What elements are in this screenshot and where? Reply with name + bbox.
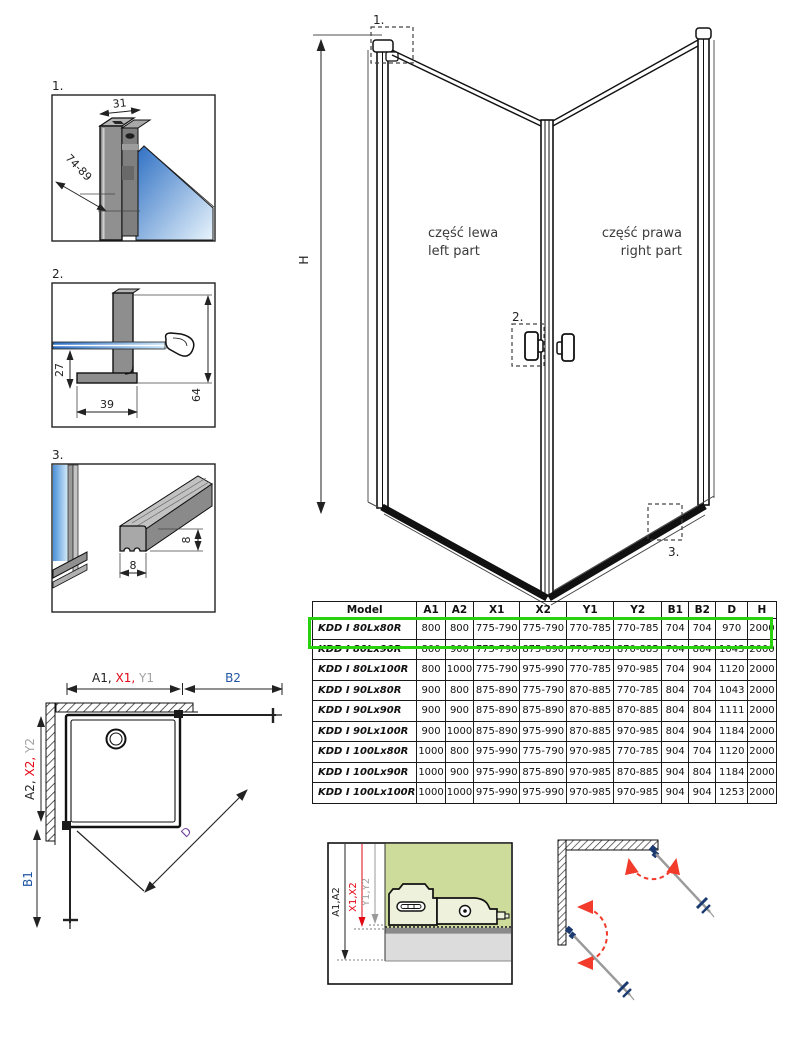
tray-edge-block [385,934,511,961]
height-dim-label: H [296,255,311,264]
detail-1-callout: 1. 31 74-89 [52,79,215,241]
table-cell: 2000 [748,762,776,783]
table-cell: 1184 [716,721,748,742]
table-row: KDD I 80Lx90R800900775-790875-890770-785… [313,639,777,660]
table-cell: 900 [445,762,473,783]
table-cell: 704 [689,680,716,701]
column-header: X1 [474,602,520,619]
table-cell: 875-890 [474,680,520,701]
table-cell: 975-990 [520,721,567,742]
table-cell: 704 [662,639,689,660]
table-cell: 800 [417,639,445,660]
table-cell: 704 [662,619,689,640]
table-cell: 2000 [748,742,776,763]
profile-band [385,928,511,934]
table-cell: 804 [689,762,716,783]
column-header: B2 [689,602,716,619]
table-cell: 770-785 [614,619,662,640]
model-cell: KDD I 100Lx80R [313,742,417,763]
dim-label-a1x1y1: A1, X1, Y1 [92,671,154,685]
table-cell: 1000 [417,783,445,804]
dim-label: 8 [130,559,137,572]
column-header: A1 [417,602,445,619]
table-cell: 875-890 [520,639,567,660]
table-cell: 770-785 [567,660,614,681]
table-cell: 970-985 [614,721,662,742]
door-glass-line [574,936,630,995]
left-part-label-pl: część lewa [428,226,498,241]
table-cell: 870-885 [567,680,614,701]
table-cell: 770-785 [567,619,614,640]
table-cell: 800 [445,680,473,701]
table-cell: 775-790 [520,619,567,640]
table-cell: 1000 [417,742,445,763]
model-cell: KDD I 90Lx100R [313,721,417,742]
table-cell: 2000 [748,619,776,640]
table-cell: 1111 [716,701,748,722]
model-cell: KDD I 90Lx80R [313,680,417,701]
table-cell: 1253 [716,783,748,804]
table-cell: 904 [662,783,689,804]
table-cell: 875-890 [474,721,520,742]
table-cell: 900 [417,721,445,742]
table-cell: 900 [445,701,473,722]
table-cell: 900 [445,639,473,660]
plan-left-dimensions: A2, X2, Y2 B1 [21,717,41,927]
table-cell: 804 [689,639,716,660]
upper-door [629,845,714,917]
detail-2-callout: 2. 27 39 [52,267,215,427]
shower-tray [66,715,180,827]
dim-label: 8 [180,537,193,544]
table-cell: 870-885 [614,639,662,660]
table-cell: 2000 [748,639,776,660]
table-cell: 1043 [716,680,748,701]
left-door-handle [525,332,538,360]
table-cell: 775-790 [520,742,567,763]
table-cell: 1184 [716,762,748,783]
table-cell: 1000 [445,783,473,804]
table-cell: 1000 [417,762,445,783]
table-cell: 870-885 [614,701,662,722]
dim-label: 31 [112,96,127,110]
table-cell: 875-890 [520,762,567,783]
table-cell: 970-985 [567,742,614,763]
dim-label: 64 [190,388,203,402]
dim-label-y: Y1,Y2 [361,878,372,907]
table-cell: 975-990 [520,783,567,804]
table-cell: 904 [662,762,689,783]
center-post [541,120,553,596]
table-cell: 904 [689,721,716,742]
column-header: Y1 [567,602,614,619]
dim-label-x: X1,X2 [348,882,359,912]
dim-label: 27 [53,363,66,377]
table-cell: 1120 [716,742,748,763]
plan-top-dimensions: A1, X1, Y1 B2 [67,671,282,695]
right-door-handle [562,334,574,361]
column-header: H [748,602,776,619]
table-cell: 904 [689,660,716,681]
main-drawing: H [300,10,790,610]
table-cell: 804 [662,721,689,742]
table-cell: 775-790 [474,660,520,681]
model-cell: KDD I 100Lx100R [313,783,417,804]
door-swing-line [77,831,144,891]
right-panel [696,28,714,505]
column-header: Y2 [614,602,662,619]
part-labels: część lewa left part część prawa right p… [428,226,682,259]
table-cell: 870-885 [567,701,614,722]
column-header: A2 [445,602,473,619]
dim-label: 39 [100,398,114,411]
table-cell: 1000 [445,721,473,742]
detail-1-label: 1. [52,79,63,93]
table-row: KDD I 100Lx90R1000900975-990875-890970-9… [313,762,777,783]
table-cell: 775-790 [474,619,520,640]
table-cell: 970-985 [567,762,614,783]
table-cell: 1000 [445,660,473,681]
table-cell: 875-890 [474,701,520,722]
model-cell: KDD I 80Lx80R [313,619,417,640]
table-cell: 1120 [716,660,748,681]
table-cell: 770-785 [614,680,662,701]
section-view: A1,A2 X1,X2 Y1,Y2 [327,842,513,985]
table-cell: 975-990 [474,762,520,783]
right-part-label-en: right part [621,244,682,259]
lower-door [565,907,634,1000]
product-spec-sheet: 1. 31 74-89 [0,0,791,1045]
dim-label-b2: B2 [225,671,241,685]
table-cell: 804 [662,680,689,701]
top-cap [696,28,711,39]
table-cell: 775-790 [474,639,520,660]
table-cell: 800 [417,660,445,681]
table-cell: 970 [716,619,748,640]
table-cell: 975-990 [474,783,520,804]
corner-walls [558,840,658,945]
model-cell: KDD I 80Lx90R [313,639,417,660]
table-row: KDD I 90Lx100R9001000875-890975-990870-8… [313,721,777,742]
table-cell: 704 [689,742,716,763]
dim-label-a2x2y2: A2, X2, Y2 [23,738,37,800]
detail-3-label: 3. [52,448,63,462]
column-header: Model [313,602,417,619]
table-cell: 804 [662,701,689,722]
table-cell: 970-985 [614,660,662,681]
table-cell: 800 [445,742,473,763]
table-cell: 870-885 [567,721,614,742]
left-part-label-en: left part [428,244,480,259]
table-cell: 900 [417,680,445,701]
table-cell: 975-990 [474,742,520,763]
marker-3: 3. [668,545,679,559]
table-cell: 870-885 [614,762,662,783]
detail-callouts: 1. 31 74-89 [40,70,220,615]
table-cell: 800 [417,619,445,640]
column-header: B1 [662,602,689,619]
left-panel [368,40,398,508]
table-cell: 704 [689,619,716,640]
table-cell: 775-790 [520,680,567,701]
detail-markers: 1. 2. 3. [371,13,682,559]
table-cell: 804 [689,701,716,722]
table-cell: 970-985 [567,783,614,804]
model-cell: KDD I 100Lx90R [313,762,417,783]
top-cap [373,40,393,52]
table-row: KDD I 90Lx90R900900875-890875-890870-885… [313,701,777,722]
marker-2: 2. [512,310,523,324]
plan-view: A1, X1, Y1 B2 [28,665,300,970]
table-row: KDD I 80Lx80R800800775-790775-790770-785… [313,619,777,640]
table-row: KDD I 80Lx100R8001000775-790975-990770-7… [313,660,777,681]
table-cell: 800 [445,619,473,640]
table-cell: 2000 [748,660,776,681]
marker-1: 1. [373,13,384,27]
table-cell: 875-890 [520,701,567,722]
table-cell: 704 [662,660,689,681]
hinge [62,821,71,830]
table-row: KDD I 90Lx80R900800875-890775-790870-885… [313,680,777,701]
table-cell: 975-990 [520,660,567,681]
table-cell: 1043 [716,639,748,660]
dim-label-a: A1,A2 [331,887,342,917]
column-header: X2 [520,602,567,619]
table-cell: 904 [689,783,716,804]
table-cell: 2000 [748,680,776,701]
model-cell: KDD I 80Lx100R [313,660,417,681]
table-cell: 770-785 [567,639,614,660]
glass-panel [53,465,68,561]
hinge [174,710,183,718]
table-row: KDD I 100Lx100R10001000975-990975-990970… [313,783,777,804]
table-cell: 2000 [748,783,776,804]
door-swing-view [550,835,790,1040]
table-cell: 770-785 [614,742,662,763]
detail-3-callout: 3. 8 8 [52,448,215,612]
detail-2-label: 2. [52,267,63,281]
table-cell: 900 [417,701,445,722]
column-header: D [716,602,748,619]
model-cell: KDD I 90Lx90R [313,701,417,722]
table-cell: 2000 [748,721,776,742]
table-header-row: ModelA1A2X1X2Y1Y2B1B2DH [313,602,777,619]
table-row: KDD I 100Lx80R1000800975-990775-790970-9… [313,742,777,763]
dim-label-b1: B1 [21,871,35,887]
table-cell: 2000 [748,701,776,722]
table-cell: 970-985 [614,783,662,804]
dimensions-table: ModelA1A2X1X2Y1Y2B1B2DHKDD I 80Lx80R8008… [312,601,777,804]
table-cell: 904 [662,742,689,763]
right-part-label-pl: część prawa [602,226,682,241]
